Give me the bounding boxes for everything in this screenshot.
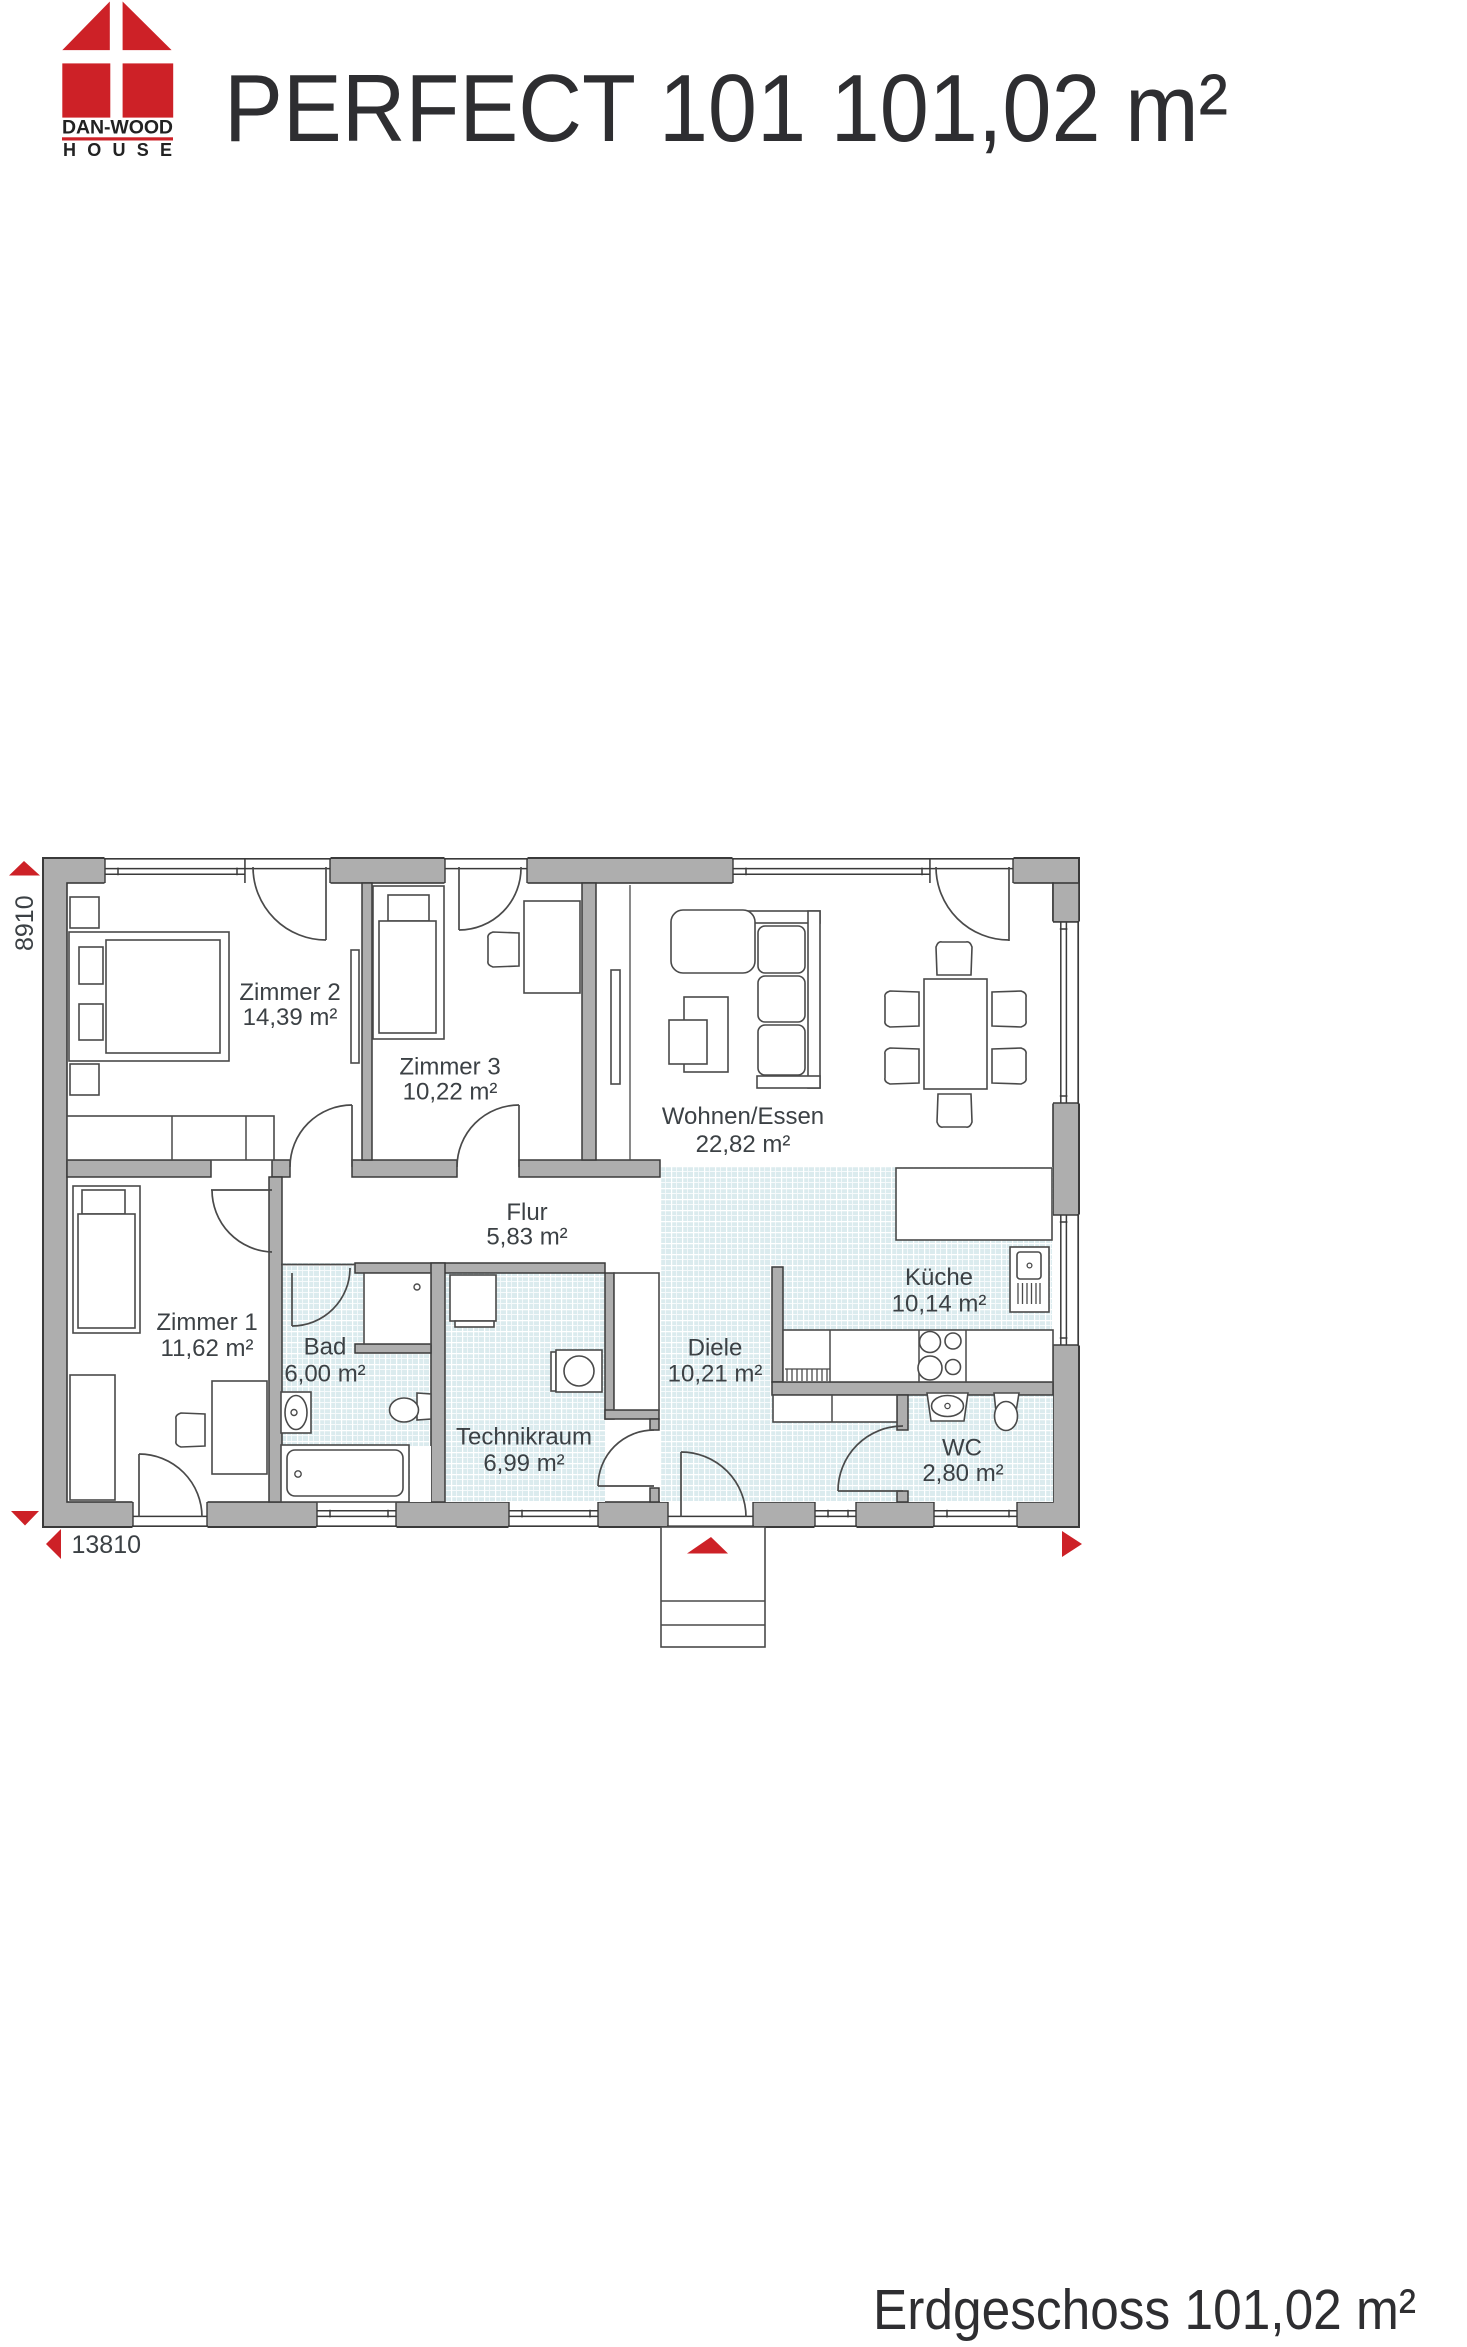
svg-text:10,14 m²: 10,14 m² [892, 1291, 987, 1318]
svg-text:14,39 m²: 14,39 m² [243, 1004, 338, 1031]
svg-text:10,22 m²: 10,22 m² [403, 1079, 498, 1106]
svg-text:DAN-WOOD: DAN-WOOD [62, 117, 173, 139]
svg-text:Zimmer 1: Zimmer 1 [156, 1309, 257, 1336]
svg-text:5,83 m²: 5,83 m² [486, 1224, 567, 1251]
svg-text:Erdgeschoss 101,02 m²: Erdgeschoss 101,02 m² [873, 2278, 1416, 2342]
svg-text:H O U S E: H O U S E [63, 140, 172, 160]
svg-text:Wohnen/Essen: Wohnen/Essen [662, 1103, 824, 1130]
svg-text:Flur: Flur [506, 1199, 547, 1226]
svg-text:6,00 m²: 6,00 m² [284, 1361, 365, 1388]
svg-text:Zimmer 2: Zimmer 2 [239, 979, 340, 1006]
svg-text:11,62 m²: 11,62 m² [161, 1335, 254, 1362]
svg-text:13810: 13810 [72, 1531, 142, 1559]
svg-text:Diele: Diele [688, 1335, 743, 1362]
svg-text:2,80 m²: 2,80 m² [922, 1460, 1003, 1487]
svg-text:22,82 m²: 22,82 m² [696, 1131, 791, 1158]
svg-text:PERFECT 101 101,02 m²: PERFECT 101 101,02 m² [224, 55, 1228, 162]
svg-text:Küche: Küche [905, 1264, 973, 1291]
svg-text:WC: WC [942, 1435, 982, 1462]
svg-text:Technikraum: Technikraum [456, 1424, 592, 1451]
svg-text:Bad: Bad [304, 1334, 347, 1361]
svg-text:8910: 8910 [11, 895, 39, 951]
svg-text:6,99 m²: 6,99 m² [483, 1450, 564, 1477]
svg-text:10,21 m²: 10,21 m² [668, 1361, 763, 1388]
svg-text:Zimmer 3: Zimmer 3 [399, 1054, 500, 1081]
